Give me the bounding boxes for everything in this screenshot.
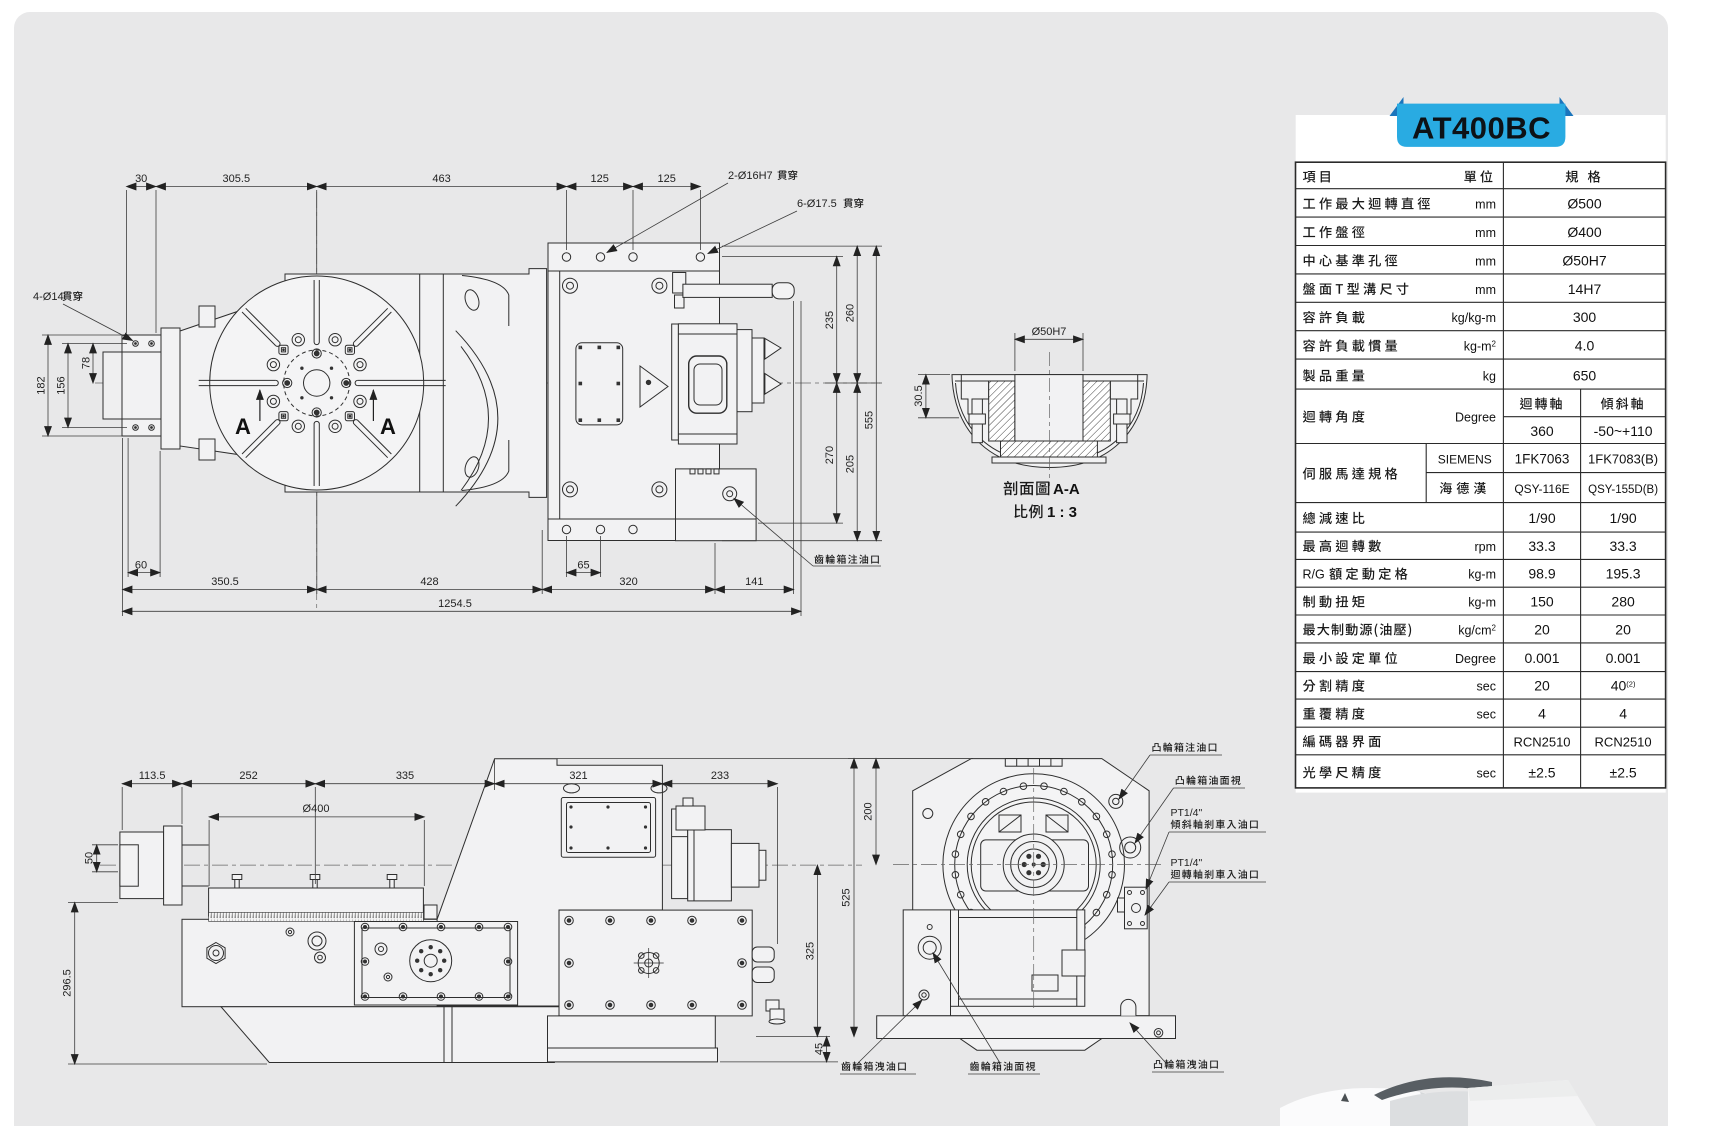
svg-text:sec: sec	[1477, 708, 1496, 722]
svg-text:525: 525	[841, 888, 853, 906]
svg-text:mm: mm	[1475, 254, 1496, 268]
svg-text:6-Ø17.5: 6-Ø17.5	[797, 198, 837, 210]
svg-text:A: A	[380, 414, 396, 439]
svg-text:AT400BC: AT400BC	[1412, 111, 1551, 146]
svg-text:20: 20	[1534, 621, 1550, 637]
svg-text:150: 150	[1530, 594, 1554, 610]
svg-text:335: 335	[396, 770, 414, 782]
svg-text:30: 30	[135, 173, 147, 185]
svg-text:sec: sec	[1477, 766, 1496, 780]
svg-text:33.3: 33.3	[1609, 538, 1636, 554]
svg-text:Ø50H7: Ø50H7	[1562, 252, 1607, 268]
svg-text:2-Ø16H7: 2-Ø16H7	[728, 170, 773, 182]
svg-text:235: 235	[824, 311, 836, 329]
svg-text:1254.5: 1254.5	[438, 598, 472, 610]
svg-text:1FK7063: 1FK7063	[1515, 452, 1570, 467]
svg-text:R/G: R/G	[1303, 568, 1325, 582]
svg-text:60: 60	[135, 560, 147, 572]
svg-text:200: 200	[863, 802, 875, 820]
svg-text:78: 78	[81, 357, 93, 369]
svg-text:195.3: 195.3	[1606, 566, 1641, 582]
svg-text:0.001: 0.001	[1524, 650, 1559, 666]
svg-text:325: 325	[805, 942, 817, 960]
svg-text:98.9: 98.9	[1528, 566, 1555, 582]
svg-text:156: 156	[56, 376, 68, 394]
svg-text:555: 555	[864, 411, 876, 429]
svg-text:463: 463	[432, 173, 450, 185]
svg-text:SIEMENS: SIEMENS	[1438, 453, 1492, 467]
svg-text:Ø50H7: Ø50H7	[1032, 326, 1067, 338]
svg-text:mm: mm	[1475, 283, 1496, 297]
svg-text:14H7: 14H7	[1568, 281, 1602, 297]
svg-text:4: 4	[1619, 706, 1627, 722]
svg-text:125: 125	[658, 173, 676, 185]
svg-text:270: 270	[824, 446, 836, 464]
svg-text:±2.5: ±2.5	[1610, 764, 1637, 780]
svg-text:125: 125	[591, 173, 609, 185]
svg-text:PT1/4": PT1/4"	[1171, 857, 1203, 869]
svg-text:320: 320	[619, 576, 637, 588]
svg-text:141: 141	[745, 576, 763, 588]
svg-text:360: 360	[1530, 423, 1554, 439]
svg-text:kg-m: kg-m	[1468, 596, 1496, 610]
svg-text:1/90: 1/90	[1528, 510, 1555, 526]
svg-text:321: 321	[569, 770, 587, 782]
svg-text:50: 50	[84, 852, 96, 864]
svg-text:4-Ø14: 4-Ø14	[33, 291, 64, 303]
svg-text:PT1/4": PT1/4"	[1171, 807, 1203, 819]
svg-text:1 : 3: 1 : 3	[1047, 504, 1077, 521]
svg-text:182: 182	[36, 376, 48, 394]
svg-text:kg/kg-m: kg/kg-m	[1452, 311, 1496, 325]
svg-text:sec: sec	[1477, 680, 1496, 694]
svg-text:45: 45	[814, 1043, 826, 1055]
svg-text:300: 300	[1573, 309, 1597, 325]
svg-text:A-A: A-A	[1053, 481, 1080, 498]
svg-text:A: A	[235, 414, 251, 439]
svg-text:260: 260	[845, 304, 857, 322]
svg-text:33.3: 33.3	[1528, 538, 1555, 554]
svg-text:65: 65	[577, 560, 589, 572]
svg-text:350.5: 350.5	[211, 576, 239, 588]
svg-text:QSY-116E: QSY-116E	[1514, 482, 1569, 496]
svg-text:±2.5: ±2.5	[1528, 764, 1555, 780]
svg-text:Degree: Degree	[1455, 411, 1496, 425]
svg-text:233: 233	[711, 770, 729, 782]
svg-text:Ø400: Ø400	[303, 803, 330, 815]
svg-text:Ø400: Ø400	[1567, 224, 1601, 240]
svg-text:4: 4	[1538, 706, 1546, 722]
svg-text:296.5: 296.5	[62, 969, 74, 997]
svg-text:305.5: 305.5	[223, 173, 251, 185]
svg-text:QSY-155D(B): QSY-155D(B)	[1588, 484, 1658, 496]
svg-text:RCN2510: RCN2510	[1513, 734, 1570, 749]
svg-text:Degree: Degree	[1455, 652, 1496, 666]
svg-text:4.0: 4.0	[1575, 338, 1595, 354]
svg-text:mm: mm	[1475, 198, 1496, 212]
svg-text:1FK7083(B): 1FK7083(B)	[1588, 452, 1658, 467]
svg-text:650: 650	[1573, 368, 1597, 384]
svg-text:kg/cm2: kg/cm2	[1458, 623, 1496, 637]
svg-text:252: 252	[239, 770, 257, 782]
svg-text:kg-m: kg-m	[1468, 568, 1496, 582]
svg-text:rpm: rpm	[1474, 540, 1496, 554]
svg-text:RCN2510: RCN2510	[1595, 734, 1652, 749]
svg-text:20: 20	[1534, 678, 1550, 694]
svg-text:mm: mm	[1475, 226, 1496, 240]
svg-text:-50~+110: -50~+110	[1594, 423, 1653, 439]
svg-text:428: 428	[420, 576, 438, 588]
svg-text:Ø500: Ø500	[1567, 196, 1601, 212]
svg-text:20: 20	[1615, 621, 1631, 637]
svg-text:113.5: 113.5	[139, 770, 166, 782]
svg-text:1/90: 1/90	[1609, 510, 1636, 526]
svg-text:30.5: 30.5	[913, 385, 925, 406]
svg-text:205: 205	[845, 455, 857, 473]
svg-text:kg: kg	[1483, 370, 1496, 384]
svg-text:280: 280	[1611, 594, 1635, 610]
svg-text:0.001: 0.001	[1606, 650, 1641, 666]
